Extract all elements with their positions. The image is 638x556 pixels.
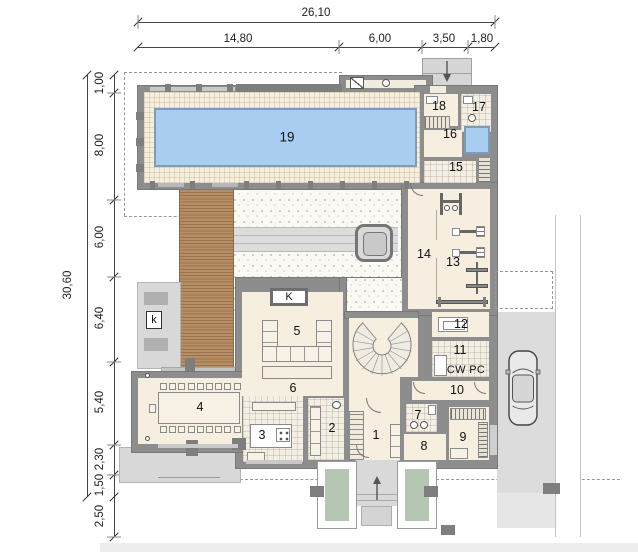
room-label-2: 2 (329, 421, 336, 435)
chair (197, 383, 204, 390)
chair (160, 426, 167, 433)
room-label-1: 1 (373, 428, 380, 442)
fireplace-box: K (270, 288, 308, 306)
window-band (150, 87, 235, 91)
pilaster (244, 181, 249, 189)
dim-line-top-segments (138, 47, 495, 48)
sink-symbol (468, 114, 476, 122)
pilaster (136, 164, 144, 172)
exercise-bench-icon (476, 247, 485, 258)
flat-bench-icon (483, 297, 486, 307)
exercise-bench-icon (460, 230, 476, 233)
gym-machine-icon (440, 200, 462, 203)
window-sill (158, 183, 184, 187)
chair (149, 404, 156, 413)
skylight-symbol (350, 77, 364, 89)
room-label-9: 9 (460, 430, 467, 444)
dim-top-seg-label: 14,80 (224, 33, 253, 45)
pilaster (276, 181, 281, 189)
terrace-bench (144, 292, 168, 305)
door-opening (430, 86, 446, 93)
chair (215, 383, 222, 390)
window-sill (212, 183, 238, 187)
dim-top-seg-label: 6,00 (369, 33, 391, 45)
exercise-bench-icon (476, 226, 485, 237)
roof-drain-symbol (382, 79, 390, 87)
pilaster (372, 181, 377, 189)
wardrobe-closet (450, 408, 486, 420)
sofa (262, 346, 332, 362)
room-label-5: 5 (294, 324, 301, 338)
pilaster (150, 181, 155, 189)
wood-deck (180, 187, 233, 368)
sink-symbol (410, 421, 418, 429)
flat-bench-icon (436, 300, 488, 304)
sink-symbol (332, 401, 341, 409)
barbell-rack-icon (466, 268, 488, 272)
gym-machine-icon (444, 205, 450, 211)
pilaster (136, 112, 144, 120)
kitchen-counter (252, 402, 296, 411)
plunge-pool (464, 126, 490, 154)
stove-symbol (276, 428, 290, 442)
chair (224, 383, 231, 390)
laundry-appliance-label: CW PC (447, 364, 485, 376)
pilaster (404, 181, 409, 189)
dim-witness (107, 362, 121, 363)
sideboard (390, 424, 401, 458)
dim-left-seg-label: 5,40 (94, 380, 106, 424)
dim-left-seg-label: 8,00 (94, 123, 106, 167)
pilaster (165, 84, 171, 92)
wall-post (186, 440, 198, 456)
partition-line (436, 258, 437, 300)
chair (160, 383, 167, 390)
column-symbol (145, 373, 150, 378)
chair (206, 426, 213, 433)
window-band (246, 460, 302, 464)
wc-symbol (428, 405, 436, 415)
chair (206, 383, 213, 390)
chair-row (160, 383, 241, 390)
car-icon (505, 348, 541, 428)
room-label-13: 13 (446, 255, 460, 269)
dim-witness (107, 93, 121, 94)
dim-witness (107, 537, 121, 538)
terrace-edge-line (158, 477, 220, 478)
dim-left-seg-label: 2,50 (94, 494, 106, 538)
pilaster (340, 181, 345, 189)
dim-witness (107, 475, 121, 476)
planter-green (325, 469, 349, 521)
hot-tub (355, 224, 393, 262)
outdoor-fireplace-box: k (146, 311, 162, 329)
chair (197, 426, 204, 433)
pilaster (308, 181, 313, 189)
garage-door-opening (490, 425, 497, 455)
entry-stoop (361, 506, 392, 526)
thick-wall-segment (236, 84, 342, 92)
overhang-dashed-line (124, 72, 342, 73)
chair (178, 426, 185, 433)
chair (169, 426, 176, 433)
pool-steps (478, 157, 491, 183)
dim-left-total-label: 30,60 (62, 255, 74, 315)
room-label-8: 8 (421, 439, 428, 453)
street-edge (100, 543, 638, 552)
dim-witness (107, 445, 121, 446)
pilaster (196, 84, 202, 92)
fence-post (543, 483, 560, 494)
column-symbol (145, 436, 150, 441)
chair (169, 383, 176, 390)
overhang-dashed-line (124, 72, 125, 216)
fence-post (310, 486, 324, 497)
bench (450, 448, 468, 459)
fence-post (424, 486, 438, 497)
room-label-10: 10 (450, 383, 464, 397)
chair (234, 383, 241, 390)
gym-machine-icon (440, 193, 443, 215)
room-label-14: 14 (417, 247, 431, 261)
dim-top-total-label: 26,10 (302, 7, 331, 19)
dim-witness (138, 15, 139, 29)
flat-bench-icon (438, 297, 441, 307)
room-label-7: 7 (415, 408, 422, 422)
dim-left-seg-label: 1,00 (94, 61, 106, 105)
terrace-bench (144, 338, 168, 351)
room-label-3: 3 (259, 428, 266, 442)
dim-left-seg-label: 6,00 (94, 215, 106, 259)
coffee-table (262, 366, 332, 379)
pilaster (227, 84, 233, 92)
chair-row (160, 426, 241, 433)
room-label-11: 11 (454, 343, 467, 357)
spiral-staircase (346, 314, 418, 378)
barbell-rack-icon (476, 262, 478, 294)
fireplace-label: K (285, 291, 292, 303)
dim-line-left-segments (114, 75, 115, 537)
dim-line-top-total (138, 22, 495, 23)
chair (224, 426, 231, 433)
room-label-6: 6 (290, 381, 297, 395)
dim-witness (107, 200, 121, 201)
down-arrow-icon (441, 60, 453, 84)
wardrobe-closet (478, 422, 488, 458)
exercise-bench-icon (452, 228, 460, 236)
dim-top-seg-label: 3,50 (433, 33, 455, 45)
room-label-17: 17 (472, 100, 486, 114)
dim-witness (495, 15, 496, 29)
floor-plan: 26,10 14,80 6,00 3,50 1,80 30,60 1,00 8,… (0, 0, 638, 556)
dim-witness (422, 40, 423, 54)
room-label-19: 19 (279, 130, 294, 145)
chair (178, 383, 185, 390)
dim-left-seg-label: 6,40 (94, 296, 106, 340)
room-label-4: 4 (197, 400, 204, 414)
chair (188, 426, 195, 433)
chair (215, 426, 222, 433)
dim-witness (339, 40, 340, 54)
room-label-15: 15 (449, 160, 463, 174)
pilaster (190, 181, 195, 189)
partition-line (436, 210, 437, 240)
sink-symbol (420, 421, 428, 429)
driveway-apron (497, 493, 555, 528)
chair (234, 426, 241, 433)
room-label-16: 16 (443, 127, 457, 141)
room-label-12: 12 (454, 317, 468, 331)
chair (188, 383, 195, 390)
gym-machine-icon (452, 205, 458, 211)
courtyard-notch (345, 278, 402, 312)
pilaster (136, 138, 144, 146)
plot-dashed-rect (495, 271, 553, 309)
dim-witness (468, 40, 469, 54)
exercise-bench-icon (460, 251, 476, 254)
hot-tub-basin (363, 232, 387, 256)
dim-witness (107, 277, 121, 278)
dim-top-seg-label: 1,80 (471, 33, 493, 45)
room-label-18: 18 (432, 99, 446, 113)
up-arrow-icon (370, 474, 384, 502)
cabinet-run (310, 406, 321, 456)
window-band (158, 444, 238, 448)
fence-post (441, 525, 455, 535)
washer-dryer (434, 355, 447, 376)
barbell-rack-icon (466, 284, 488, 288)
dim-line-left-total (87, 75, 88, 497)
outdoor-fireplace-label: k (151, 314, 157, 326)
gym-machine-icon (459, 193, 462, 215)
